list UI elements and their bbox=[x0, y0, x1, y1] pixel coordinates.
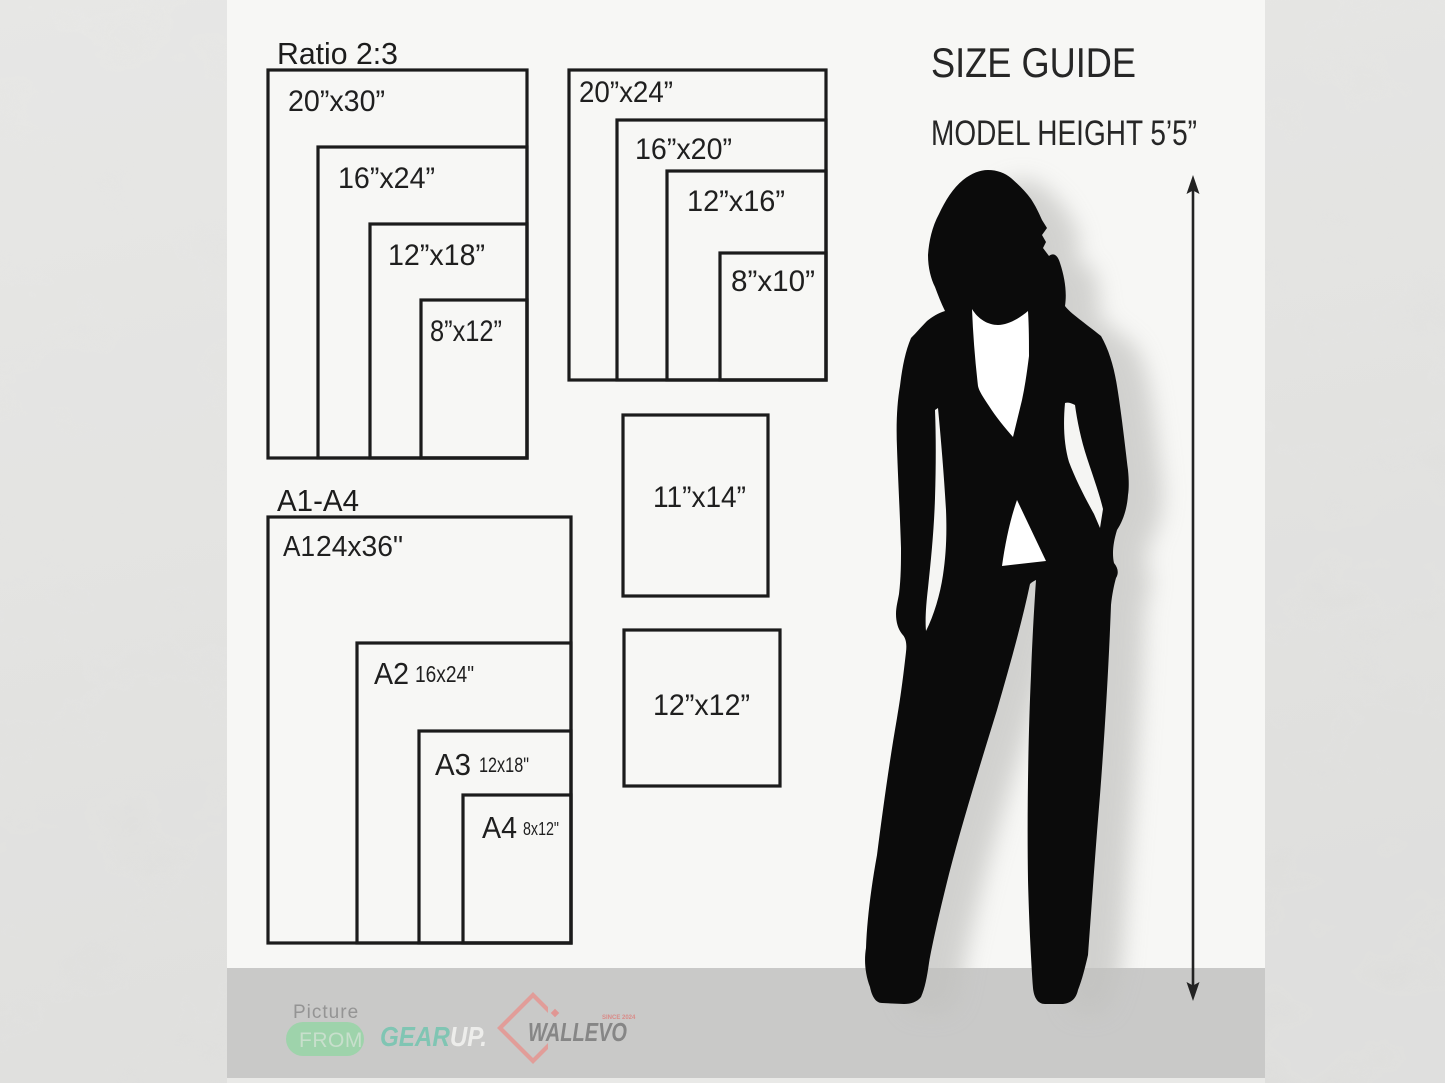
svg-text:MODEL HEIGHT 5’5”: MODEL HEIGHT 5’5” bbox=[931, 114, 1197, 153]
svg-text:16x24": 16x24" bbox=[415, 661, 474, 687]
svg-text:A1: A1 bbox=[283, 531, 315, 563]
svg-text:A1-A4: A1-A4 bbox=[277, 483, 359, 518]
svg-text:12”x18”: 12”x18” bbox=[388, 239, 485, 272]
svg-text:Ratio 2:3: Ratio 2:3 bbox=[277, 36, 398, 71]
svg-text:16”x24”: 16”x24” bbox=[338, 162, 435, 195]
svg-text:16”x20”: 16”x20” bbox=[635, 133, 732, 166]
svg-text:8x12": 8x12" bbox=[523, 819, 559, 839]
svg-text:WALLEVO: WALLEVO bbox=[528, 1017, 627, 1047]
svg-text:FROM: FROM bbox=[299, 1029, 363, 1052]
svg-text:12”x16”: 12”x16” bbox=[687, 185, 785, 218]
svg-text:20”x24”: 20”x24” bbox=[579, 76, 673, 109]
svg-text:GEARUP.: GEARUP. bbox=[380, 1021, 487, 1052]
svg-text:SIZE GUIDE: SIZE GUIDE bbox=[931, 39, 1136, 86]
svg-text:20”x30”: 20”x30” bbox=[288, 85, 385, 118]
svg-text:12”x12”: 12”x12” bbox=[653, 689, 750, 722]
svg-text:Picture: Picture bbox=[293, 1002, 359, 1023]
svg-text:A3: A3 bbox=[435, 747, 471, 782]
svg-text:A4: A4 bbox=[482, 810, 517, 845]
svg-text:8”x10”: 8”x10” bbox=[731, 265, 815, 298]
svg-text:11”x14”: 11”x14” bbox=[653, 481, 746, 514]
svg-text:A2: A2 bbox=[374, 656, 409, 691]
svg-text:24x36": 24x36" bbox=[316, 531, 403, 563]
svg-text:12x18": 12x18" bbox=[479, 754, 529, 777]
svg-text:8”x12”: 8”x12” bbox=[430, 315, 502, 348]
